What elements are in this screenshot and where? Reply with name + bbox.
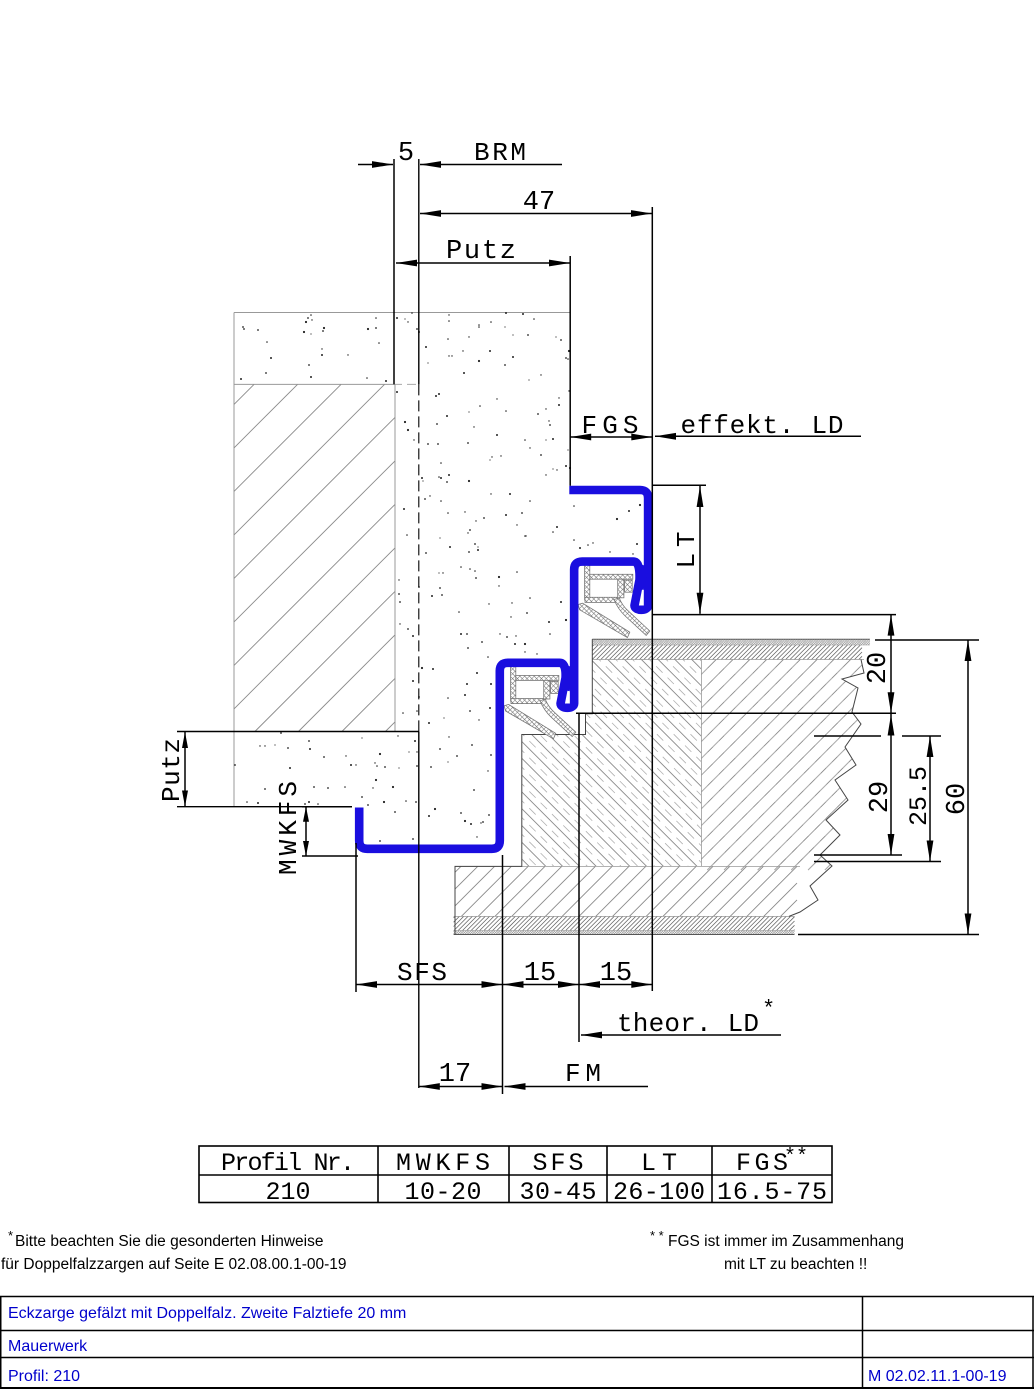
svg-text:* *: * *	[650, 1228, 664, 1243]
svg-text:26-100: 26-100	[613, 1178, 705, 1207]
svg-text:BRM: BRM	[474, 138, 526, 168]
svg-text:15: 15	[600, 959, 632, 989]
svg-text:FGS: FGS	[582, 411, 639, 441]
svg-text:17: 17	[439, 1060, 471, 1090]
svg-text:FGS: FGS	[736, 1149, 788, 1178]
svg-text:mit LT zu beachten !!: mit LT zu beachten !!	[724, 1256, 867, 1273]
svg-text:30-45: 30-45	[520, 1178, 597, 1207]
svg-text:16.5-75: 16.5-75	[717, 1178, 827, 1207]
svg-text:SFS: SFS	[397, 958, 447, 988]
svg-text:SFS: SFS	[533, 1149, 584, 1178]
svg-text:Profil: 210: Profil: 210	[8, 1368, 80, 1385]
svg-text:Profil Nr.: Profil Nr.	[221, 1149, 355, 1178]
svg-text:Bitte beachten Sie die gesonde: Bitte beachten Sie die gesonderten Hinwe…	[15, 1233, 323, 1250]
svg-text:MWKFS: MWKFS	[396, 1149, 490, 1178]
svg-text:10-20: 10-20	[405, 1178, 482, 1207]
svg-text:*: *	[8, 1228, 13, 1243]
svg-text:Putz: Putz	[446, 237, 516, 267]
svg-text:29: 29	[866, 781, 896, 813]
svg-text:47: 47	[523, 188, 555, 218]
svg-text:5: 5	[398, 139, 414, 169]
svg-text:**: **	[784, 1146, 808, 1169]
svg-text:für Doppelfalzzargen auf Seite: für Doppelfalzzargen auf Seite E 02.08.0…	[1, 1256, 347, 1273]
svg-text:20: 20	[864, 652, 894, 684]
svg-text:Putz: Putz	[157, 738, 187, 802]
svg-text:Eckzarge gefälzt mit Doppelfal: Eckzarge gefälzt mit Doppelfalz. Zweite …	[8, 1305, 406, 1322]
svg-text:15: 15	[524, 959, 556, 989]
svg-text:210: 210	[265, 1178, 310, 1207]
svg-text:theor. LD: theor. LD	[617, 1009, 759, 1039]
svg-text:25.5: 25.5	[905, 766, 934, 826]
svg-text:*: *	[762, 997, 775, 1022]
svg-text:effekt. LD: effekt. LD	[681, 411, 844, 441]
svg-text:FGS ist immer im Zusammenhang: FGS ist immer im Zusammenhang	[668, 1233, 904, 1250]
svg-text:Mauerwerk: Mauerwerk	[8, 1338, 88, 1355]
svg-text:MWKFS: MWKFS	[274, 781, 304, 875]
svg-text:60: 60	[943, 783, 973, 815]
svg-text:M 02.02.11.1-00-19: M 02.02.11.1-00-19	[868, 1368, 1007, 1385]
